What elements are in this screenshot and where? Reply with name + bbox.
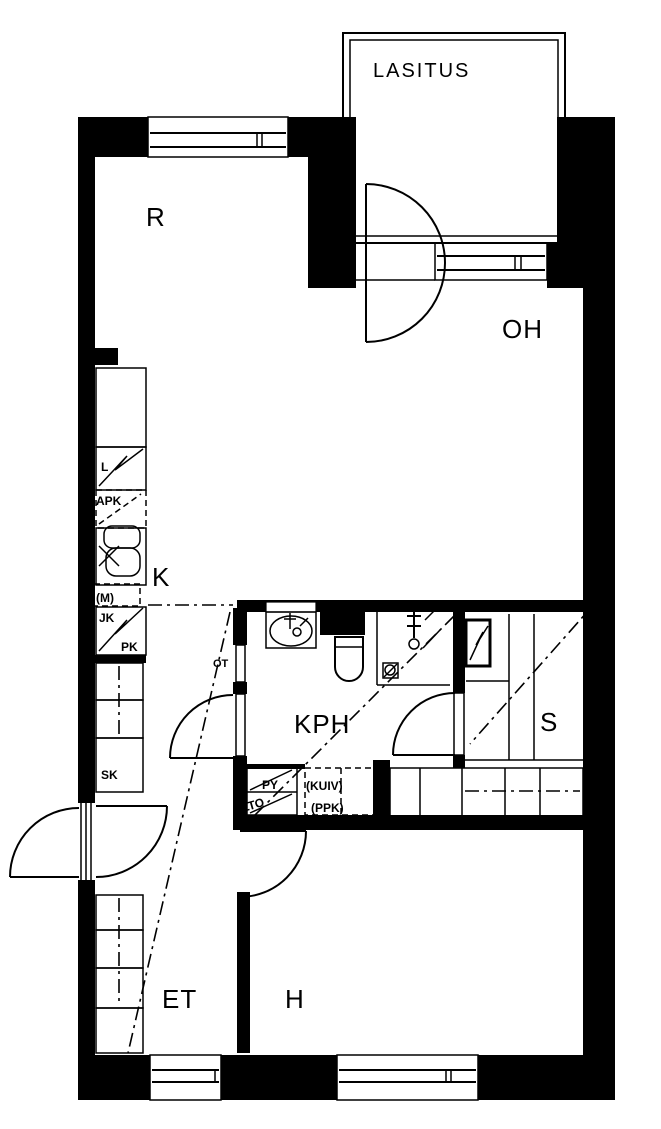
label-hatch: OT [213, 658, 229, 670]
floor-plan-page: LASITUS R OH K KPH S ET H L APK (M) JK P… [0, 0, 661, 1129]
label-laundry-cabinet: PY [262, 778, 278, 792]
wall-hatch [266, 602, 316, 612]
label-fridge: JK [99, 611, 115, 625]
washbasin-icon [266, 612, 316, 648]
sauna-door [393, 693, 464, 755]
label-dryer: (KUIV) [306, 779, 343, 793]
sauna-heater-icon [466, 620, 490, 666]
label-microwave: (M) [96, 591, 114, 605]
label-freezer: PK [121, 640, 138, 654]
label-hall: ET [162, 984, 197, 1014]
hall-closets [96, 663, 143, 1053]
cleaning-closet [96, 738, 143, 792]
closet [96, 1008, 143, 1053]
window-bottom-right [337, 1055, 478, 1100]
window-balcony [356, 243, 547, 280]
label-living-room: OH [502, 314, 543, 344]
balcony-door [366, 184, 445, 342]
shower-icon [377, 603, 450, 685]
service-hatch [236, 645, 245, 682]
base-cabinet [96, 368, 146, 447]
entrance-door [10, 803, 167, 880]
wardrobe-row [390, 768, 583, 817]
label-bathroom: KPH [294, 709, 350, 739]
window-bottom-left [150, 1055, 221, 1100]
label-stove: L [101, 460, 108, 474]
sauna-fixtures [465, 614, 583, 760]
bedroom-door [240, 831, 306, 897]
label-dishwasher: APK [96, 494, 122, 508]
wc-cistern-duct [320, 612, 365, 635]
sink-icon [96, 526, 146, 585]
label-washing-machine: (PPK) [311, 801, 344, 815]
walls [78, 117, 615, 1100]
floor-plan-drawing: LASITUS R OH K KPH S ET H L APK (M) JK P… [0, 0, 661, 1129]
label-cleaning-closet: SK [101, 768, 118, 782]
label-glazed-balcony: LASITUS [373, 60, 470, 82]
bathroom-door [170, 694, 245, 758]
label-sauna: S [540, 707, 558, 737]
toilet-icon [335, 637, 363, 681]
fixture-labels: L APK (M) JK PK SK OT PY LTO (KUIV) (PPK… [96, 460, 344, 815]
label-kitchen: K [152, 562, 170, 592]
window-top [148, 117, 288, 157]
label-bedroom: H [285, 984, 305, 1014]
label-alcove: R [146, 202, 166, 232]
